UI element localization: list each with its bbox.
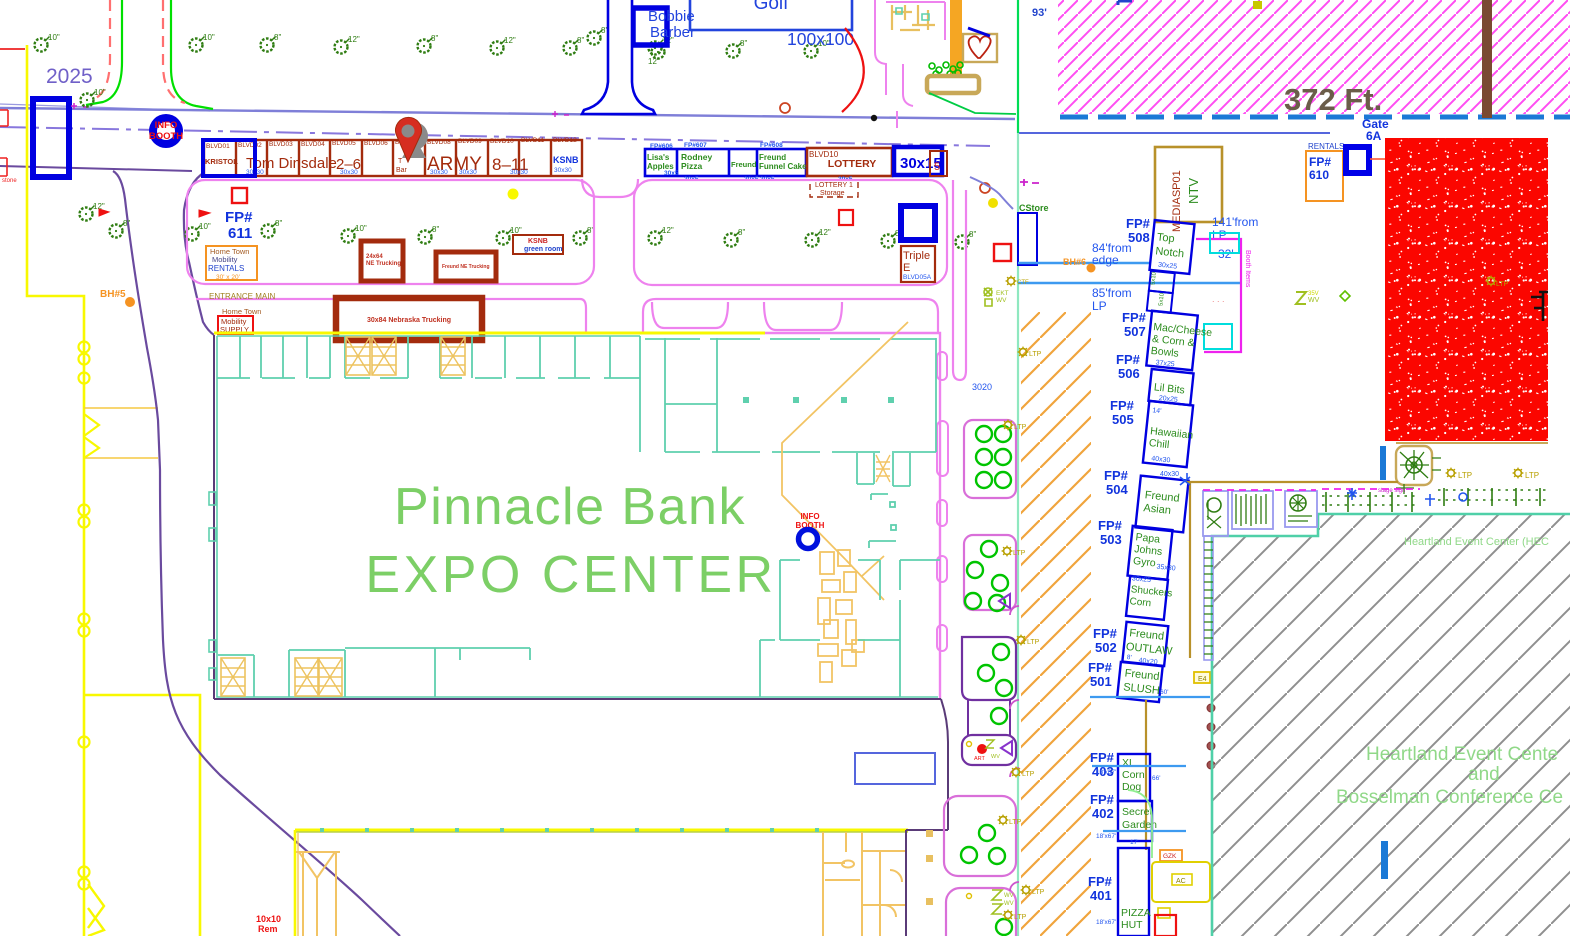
svg-text:Storage: Storage [820, 190, 845, 197]
svg-text:Freund NE Trucking: Freund NE Trucking [442, 264, 490, 270]
svg-text:ENTRANCE MAIN: ENTRANCE MAIN [209, 292, 275, 301]
svg-text:BLVD10: BLVD10 [490, 138, 514, 145]
svg-text:611: 611 [228, 225, 252, 242]
svg-text:FP#: FP# [1126, 216, 1151, 231]
svg-text:FP#: FP# [225, 209, 253, 226]
svg-text:HUT: HUT [1121, 919, 1143, 931]
svg-text:30x84 Nebraska Trucking: 30x84 Nebraska Trucking [367, 317, 451, 324]
svg-text:FP#: FP# [1090, 792, 1115, 807]
svg-text:RENTALS: RENTALS [1308, 142, 1344, 151]
svg-text:GZK: GZK [1163, 853, 1177, 860]
svg-text:LOTTERY 1: LOTTERY 1 [815, 182, 853, 189]
svg-text:610: 610 [1309, 168, 1329, 182]
svg-text:372 Ft.: 372 Ft. [1284, 82, 1382, 117]
svg-text:LTP: LTP [1029, 351, 1042, 358]
svg-text:LTP: LTP [1014, 914, 1027, 921]
svg-text:BLVD01: BLVD01 [206, 143, 230, 150]
svg-text:BLVD09: BLVD09 [458, 138, 482, 145]
svg-text:8": 8" [738, 228, 745, 237]
svg-text:505: 505 [1112, 412, 1134, 427]
svg-text:PIZZA: PIZZA [1121, 907, 1151, 919]
svg-text:LTP: LTP [1496, 281, 1509, 288]
svg-text:AC: AC [1176, 878, 1186, 885]
svg-text:501: 501 [1090, 674, 1112, 689]
svg-text:FP#607: FP#607 [684, 142, 707, 149]
svg-text:INFO: INFO [155, 120, 178, 131]
svg-text:Gyro: Gyro [1132, 555, 1156, 569]
svg-text:30x5: 30x5 [664, 170, 679, 177]
svg-text:10": 10" [199, 222, 211, 231]
svg-text:6A: 6A [1366, 129, 1382, 143]
svg-text:85'from: 85'from [1092, 286, 1132, 300]
svg-text:Lisa's: Lisa's [647, 153, 670, 162]
svg-text:LTP: LTP [1013, 550, 1026, 557]
svg-text:KSNB: KSNB [553, 155, 579, 165]
svg-text:Funnel Cake: Funnel Cake [759, 162, 807, 171]
svg-text:14': 14' [1152, 407, 1162, 415]
svg-text:Heartland Event Center (HEC: Heartland Event Center (HEC [1404, 536, 1549, 548]
svg-text:EXPO CENTER: EXPO CENTER [365, 546, 776, 604]
svg-text:FP#: FP# [1098, 518, 1123, 533]
svg-text:18'x67': 18'x67' [1096, 919, 1116, 926]
svg-text:E: E [903, 262, 910, 274]
svg-text:Secret: Secret [1122, 806, 1152, 818]
svg-text:NE Trucking: NE Trucking [366, 261, 401, 267]
svg-text:Chill: Chill [1148, 437, 1170, 451]
svg-text:T: T [398, 158, 403, 165]
svg-text:10": 10" [48, 33, 60, 42]
svg-text:Pizza: Pizza [681, 161, 703, 171]
svg-text:BLVD05A: BLVD05A [903, 274, 932, 281]
svg-text:10": 10" [510, 226, 522, 235]
svg-text:RENTALS: RENTALS [208, 264, 244, 273]
svg-text:WV: WV [1004, 893, 1014, 899]
svg-text:401: 401 [1090, 888, 1112, 903]
svg-text:Pinnacle Bank: Pinnacle Bank [394, 478, 746, 536]
svg-text:503: 503 [1100, 532, 1122, 547]
svg-text:XL: XL [1122, 757, 1135, 769]
svg-text:8": 8" [275, 219, 282, 228]
svg-text:Golf: Golf [754, 0, 790, 14]
svg-text:5: 5 [934, 161, 940, 173]
svg-text:Bobbie: Bobbie [648, 8, 695, 25]
svg-text:Corn: Corn [1129, 596, 1152, 609]
svg-text:40x30: 40x30 [1160, 471, 1179, 478]
svg-text:Barber: Barber [650, 24, 695, 41]
svg-text:8": 8" [969, 230, 976, 239]
svg-text:KRISTOL: KRISTOL [205, 157, 238, 166]
svg-text:and: and [1468, 764, 1500, 785]
svg-text:66': 66' [1152, 775, 1160, 782]
svg-text:edge: edge [1092, 253, 1119, 267]
svg-text:30x30: 30x30 [510, 169, 528, 176]
svg-text:WV: WV [1004, 901, 1014, 907]
svg-text:Bosselman Conference Ce: Bosselman Conference Ce [1336, 787, 1563, 808]
svg-text:30x30: 30x30 [430, 169, 448, 176]
svg-text:WV: WV [996, 297, 1007, 304]
svg-text:FP#: FP# [1088, 874, 1113, 889]
svg-text:Booth Items: Booth Items [1244, 250, 1251, 288]
svg-text:LTP: LTP [1022, 771, 1035, 778]
svg-text:8": 8" [432, 225, 439, 234]
svg-text:LP: LP [1092, 299, 1107, 313]
svg-text:FP#: FP# [1090, 750, 1115, 765]
svg-text:8": 8" [274, 33, 281, 42]
svg-text:Rem: Rem [258, 924, 278, 934]
svg-text:Heartland Event Cente: Heartland Event Cente [1366, 744, 1558, 765]
svg-text:BLVD04: BLVD04 [301, 141, 325, 148]
svg-text:BH#6: BH#6 [1063, 257, 1086, 267]
svg-text:502: 502 [1095, 640, 1117, 655]
svg-text:green room: green room [524, 246, 563, 253]
svg-text:60': 60' [1160, 689, 1168, 696]
svg-text:E4: E4 [1198, 676, 1207, 683]
svg-text:506: 506 [1118, 366, 1140, 381]
svg-text:FP#: FP# [1122, 310, 1147, 325]
svg-text:2025: 2025 [46, 65, 93, 88]
svg-text:100x100: 100x100 [787, 29, 854, 49]
svg-text:FP#: FP# [1116, 352, 1141, 367]
svg-text:FP#: FP# [1110, 398, 1135, 413]
svg-text:FP#: FP# [1309, 155, 1331, 169]
svg-text:BOOTH: BOOTH [149, 131, 183, 142]
svg-text:. . .: . . . [1212, 294, 1225, 304]
svg-text:10": 10" [94, 88, 106, 97]
svg-text:12": 12" [819, 228, 831, 237]
svg-text:12": 12" [662, 226, 674, 235]
svg-text:BLVD02: BLVD02 [238, 142, 262, 149]
svg-text:Top: Top [1156, 231, 1175, 245]
svg-text:12": 12" [348, 35, 360, 44]
svg-text:8': 8' [1126, 654, 1132, 661]
svg-text:CTF: CTF [1017, 280, 1029, 286]
svg-text:ART: ART [974, 756, 986, 762]
svg-text:NTV: NTV [1186, 178, 1201, 204]
svg-text:stone: stone [2, 178, 17, 184]
svg-text:FP#: FP# [1088, 660, 1113, 675]
svg-text:35V: 35V [1308, 291, 1319, 297]
svg-text:LOTTERY: LOTTERY [828, 158, 877, 170]
svg-text:EKT: EKT [996, 290, 1009, 297]
svg-text:BLVD03: BLVD03 [269, 141, 293, 148]
svg-text:LTP: LTP [1014, 424, 1027, 431]
svg-text:12": 12" [504, 36, 516, 45]
svg-text:LTP: LTP [1525, 471, 1539, 480]
svg-text:Corn: Corn [1122, 769, 1145, 781]
svg-text:KSNB: KSNB [528, 238, 548, 245]
svg-text:LTP: LTP [1027, 639, 1040, 646]
svg-text:141'from: 141'from [1212, 215, 1258, 229]
svg-text:24x64: 24x64 [366, 254, 383, 260]
svg-text:30x30: 30x30 [459, 169, 477, 176]
svg-text:18'x67': 18'x67' [1096, 769, 1116, 776]
svg-text:LTP: LTP [1458, 471, 1472, 480]
svg-text:3020: 3020 [972, 382, 992, 392]
svg-text:FP#606: FP#606 [650, 143, 673, 150]
svg-text:INFO: INFO [800, 512, 819, 521]
svg-text:30x30: 30x30 [340, 169, 358, 176]
svg-text:8": 8" [577, 36, 584, 45]
svg-text:LTP: LTP [1032, 889, 1045, 896]
svg-text:504: 504 [1106, 482, 1128, 497]
svg-text:FP#: FP# [1093, 626, 1118, 641]
svg-text:WV: WV [991, 754, 1000, 760]
svg-text:BLVD12: BLVD12 [553, 137, 577, 144]
svg-text:BLVD08: BLVD08 [427, 139, 451, 146]
svg-text:18'x67': 18'x67' [1096, 833, 1116, 840]
svg-text:508: 508 [1128, 230, 1150, 245]
svg-text:Bar: Bar [396, 167, 408, 174]
svg-text:8": 8" [123, 219, 130, 228]
svg-text:BLVD11: BLVD11 [521, 137, 545, 144]
svg-text:402: 402 [1092, 806, 1114, 821]
svg-text:CStore: CStore [1019, 203, 1049, 213]
svg-text:FP#608: FP#608 [760, 142, 783, 149]
svg-text:WV: WV [1308, 297, 1320, 304]
svg-text:10": 10" [203, 33, 215, 42]
svg-text:FP#: FP# [1104, 468, 1129, 483]
svg-text:30x30: 30x30 [554, 167, 572, 174]
svg-text:17': 17' [1130, 839, 1138, 846]
svg-text:BLVD05: BLVD05 [332, 140, 356, 147]
svg-text:30' x 20': 30' x 20' [216, 274, 240, 281]
svg-text:93': 93' [1032, 7, 1047, 19]
svg-text:10": 10" [355, 224, 367, 233]
svg-text:Home Town: Home Town [222, 307, 261, 316]
svg-text:Freund: Freund [759, 153, 786, 162]
svg-text:8": 8" [431, 34, 438, 43]
svg-text:8": 8" [740, 39, 747, 48]
svg-text:12": 12" [648, 57, 660, 66]
svg-text:507: 507 [1124, 324, 1146, 339]
svg-text:Mobility: Mobility [212, 255, 238, 264]
svg-text:BH#5: BH#5 [100, 289, 126, 300]
svg-text:LTP: LTP [1009, 819, 1022, 826]
svg-text:10x10: 10x10 [256, 914, 281, 924]
svg-text:BLVD06: BLVD06 [364, 140, 388, 147]
svg-text:Triple: Triple [903, 250, 930, 262]
svg-text:Freund: Freund [731, 160, 757, 169]
